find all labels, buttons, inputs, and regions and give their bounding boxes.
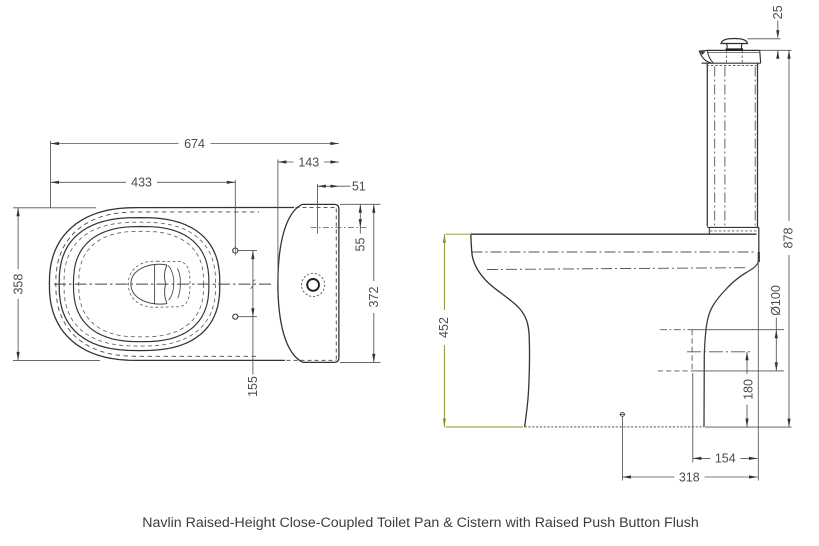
svg-text:Ø100: Ø100 xyxy=(769,285,783,316)
svg-text:318: 318 xyxy=(679,470,700,484)
svg-text:Navlin Raised-Height Close-Cou: Navlin Raised-Height Close-Coupled Toile… xyxy=(142,515,698,531)
svg-text:452: 452 xyxy=(437,317,451,338)
svg-text:433: 433 xyxy=(131,176,152,190)
svg-text:155: 155 xyxy=(246,376,260,397)
svg-text:55: 55 xyxy=(354,238,368,252)
svg-text:143: 143 xyxy=(298,155,319,169)
svg-text:180: 180 xyxy=(742,379,756,400)
svg-text:358: 358 xyxy=(11,274,25,295)
svg-text:51: 51 xyxy=(352,180,366,194)
svg-text:154: 154 xyxy=(715,452,736,466)
svg-text:25: 25 xyxy=(771,5,785,19)
svg-text:878: 878 xyxy=(782,228,796,249)
svg-text:372: 372 xyxy=(367,287,381,308)
svg-text:674: 674 xyxy=(184,137,205,151)
